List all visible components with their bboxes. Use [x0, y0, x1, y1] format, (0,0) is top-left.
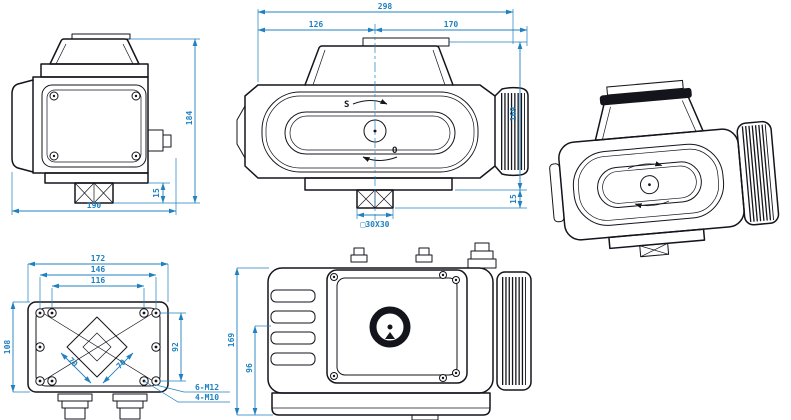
shut-marker: S	[344, 100, 349, 110]
callout-inner-bolts: 4-M10	[195, 393, 219, 402]
dim-side2-height-label: 169	[227, 333, 236, 348]
side2-geometry	[268, 243, 531, 420]
base-plate	[272, 393, 490, 420]
dim-side-height-label: 184	[185, 111, 194, 126]
cable-gland	[468, 243, 496, 268]
indicator-window-outer	[262, 92, 478, 172]
dim-bottom-h2-label: 92	[171, 342, 180, 352]
side2-dimensions: 169 96	[227, 268, 273, 415]
base-plate	[45, 173, 148, 183]
top-cover	[305, 46, 453, 85]
shut-rotation-arrow	[353, 101, 387, 105]
top-bolts	[351, 248, 432, 262]
dim-side-bracket-label: 15	[152, 188, 161, 198]
bottom-feet	[58, 394, 147, 419]
actuator-body	[245, 85, 495, 178]
dim-side2-lower-label: 96	[245, 363, 254, 373]
technical-drawing-canvas: 190 184 15 S O	[0, 0, 791, 420]
ribbed-end-cap	[497, 272, 531, 390]
motor-end-cap	[12, 80, 33, 172]
output-shaft	[373, 310, 407, 344]
top-cover	[41, 34, 148, 77]
dim-front-total-label: 298	[378, 2, 393, 11]
panel-screws	[331, 272, 460, 382]
iso-top-cover	[591, 79, 703, 140]
front-view: S O 298 126 170 169	[225, 0, 545, 245]
iso-bracket	[640, 243, 669, 256]
bottom-flange	[305, 178, 452, 190]
open-rotation-arrow	[363, 157, 397, 161]
iso-body	[558, 128, 746, 241]
iso-ribbed-cap	[737, 121, 780, 226]
side-view-geometry	[12, 34, 171, 203]
ribbed-end-cap	[495, 88, 528, 176]
iso-flange	[609, 229, 705, 248]
indicator-slot-outer	[285, 112, 455, 154]
iso-view	[548, 62, 791, 260]
side-view-2: 169 96	[225, 240, 550, 420]
bottom-view: 172 146 116 108 92 70 70 6-M12 4-M10	[0, 250, 240, 420]
callout-outer-bolts: 6-M12	[195, 383, 219, 392]
dim-bottom-w3-label: 116	[91, 276, 106, 285]
bottom-view-geometry	[28, 302, 168, 419]
iso-view-geometry	[543, 73, 781, 264]
cover-top-band	[363, 38, 449, 46]
front-view-geometry: S O	[237, 38, 528, 208]
cable-gland	[148, 130, 171, 151]
dim-side-width-label: 190	[87, 201, 102, 210]
cooling-fins	[271, 290, 315, 365]
dim-bottom-h1-label: 108	[3, 340, 12, 355]
open-marker: O	[392, 146, 398, 156]
panel-screws	[50, 92, 140, 160]
end-wedge	[237, 106, 245, 158]
mounting-bracket	[75, 183, 113, 203]
dim-front-height-label: 169	[509, 107, 518, 122]
output-square-inner	[83, 333, 111, 361]
dim-bottom-w2-label: 146	[91, 265, 106, 274]
side-view-dimensions: 190 184 15	[12, 39, 200, 215]
side-view: 190 184 15	[0, 0, 215, 225]
dim-front-bracket-label: 15	[509, 194, 518, 204]
dim-front-left-label: 126	[309, 20, 324, 29]
dim-bottom-w1-label: 172	[91, 254, 106, 263]
dim-front-right-label: 170	[444, 20, 459, 29]
access-panel	[327, 270, 467, 383]
dim-output-square-label: □30X30	[361, 220, 390, 229]
body-panel-inner	[47, 90, 141, 162]
